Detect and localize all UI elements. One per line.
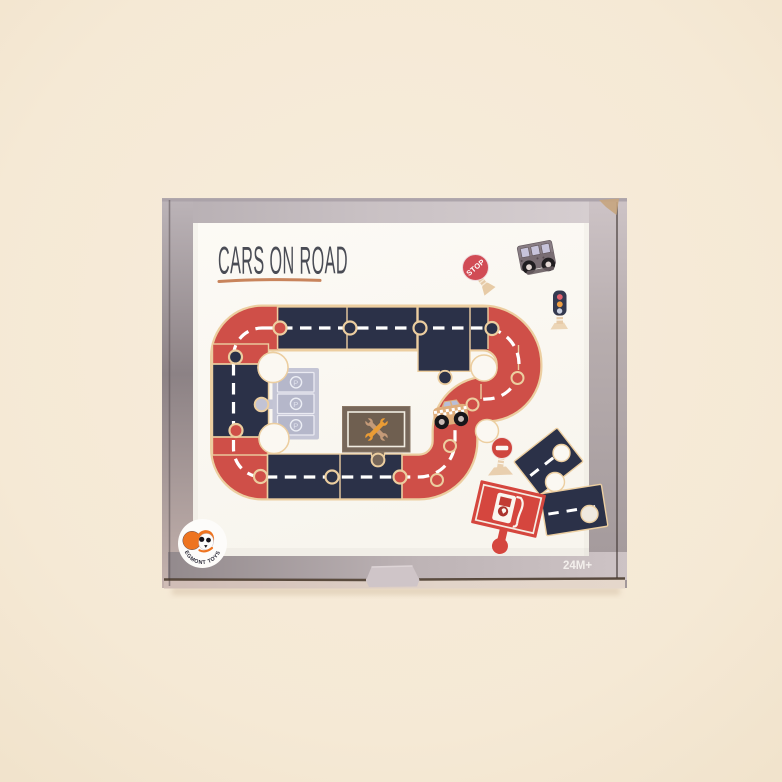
svg-text:24M+: 24M+: [563, 560, 592, 572]
svg-text:P: P: [293, 421, 298, 430]
svg-text:CARS ON ROAD: CARS ON ROAD: [218, 240, 348, 283]
svg-text:P: P: [293, 400, 298, 409]
svg-text:P: P: [293, 378, 298, 387]
